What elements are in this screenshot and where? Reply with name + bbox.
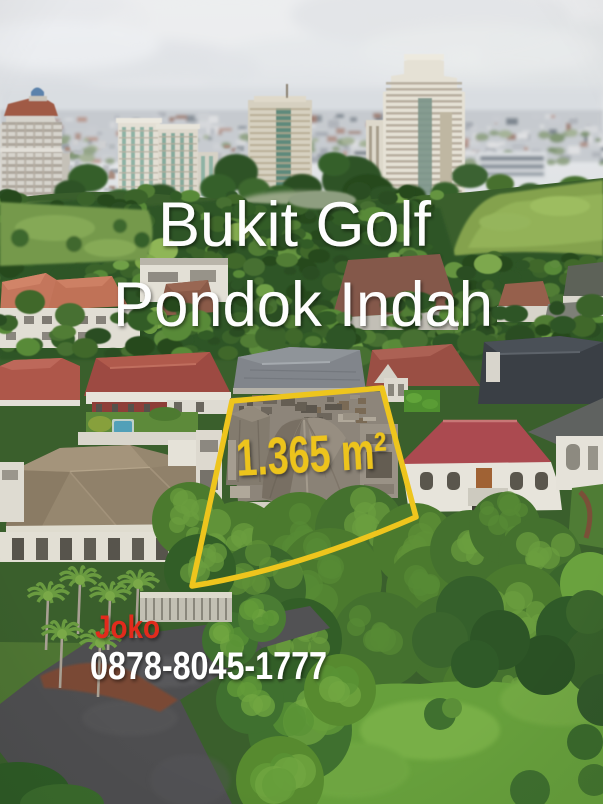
svg-text:Joko: Joko [95, 609, 160, 645]
svg-text:Bukit Golf: Bukit Golf [158, 190, 431, 260]
svg-text:Pondok Indah: Pondok Indah [113, 270, 493, 340]
svg-text:0878-8045-1777: 0878-8045-1777 [90, 645, 327, 688]
svg-text:1.365 m²: 1.365 m² [235, 422, 389, 488]
